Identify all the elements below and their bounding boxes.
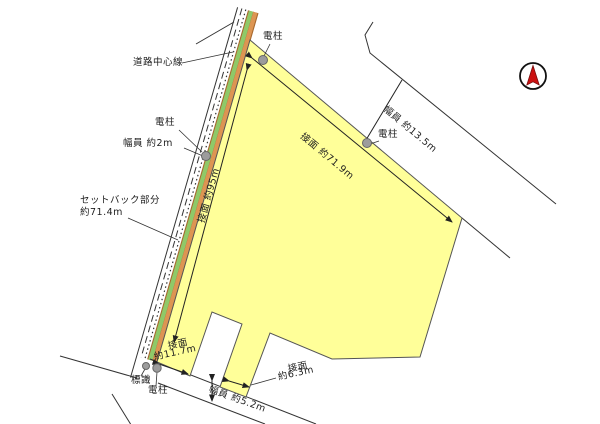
utility-pole-label-right: 電柱 <box>378 129 398 140</box>
boundary-right <box>462 218 510 258</box>
utility-pole-marker-top <box>259 56 268 65</box>
setback-label-line1: セットバック部分 <box>80 195 160 206</box>
road-centerline-label: 道路中心線 <box>133 57 183 68</box>
utility-pole-label-bottom: 電柱 <box>148 385 168 396</box>
utility-pole-marker-right <box>363 139 372 148</box>
site-plan: 道路中心線 電柱 電柱 幅員 約2m セットバック部分 約71.4m 接面 約9… <box>0 0 600 424</box>
utility-pole-marker-bottom <box>153 364 161 372</box>
utility-pole-label-mid: 電柱 <box>155 117 175 128</box>
setback-label-line2: 約71.4m <box>80 207 123 218</box>
road-width-left-label: 幅員 約2m <box>123 138 173 149</box>
utility-pole-marker-mid <box>202 152 211 161</box>
sign-marker-bottom <box>143 363 150 370</box>
compass-icon <box>520 63 546 89</box>
utility-pole-label-top: 電柱 <box>263 31 283 42</box>
